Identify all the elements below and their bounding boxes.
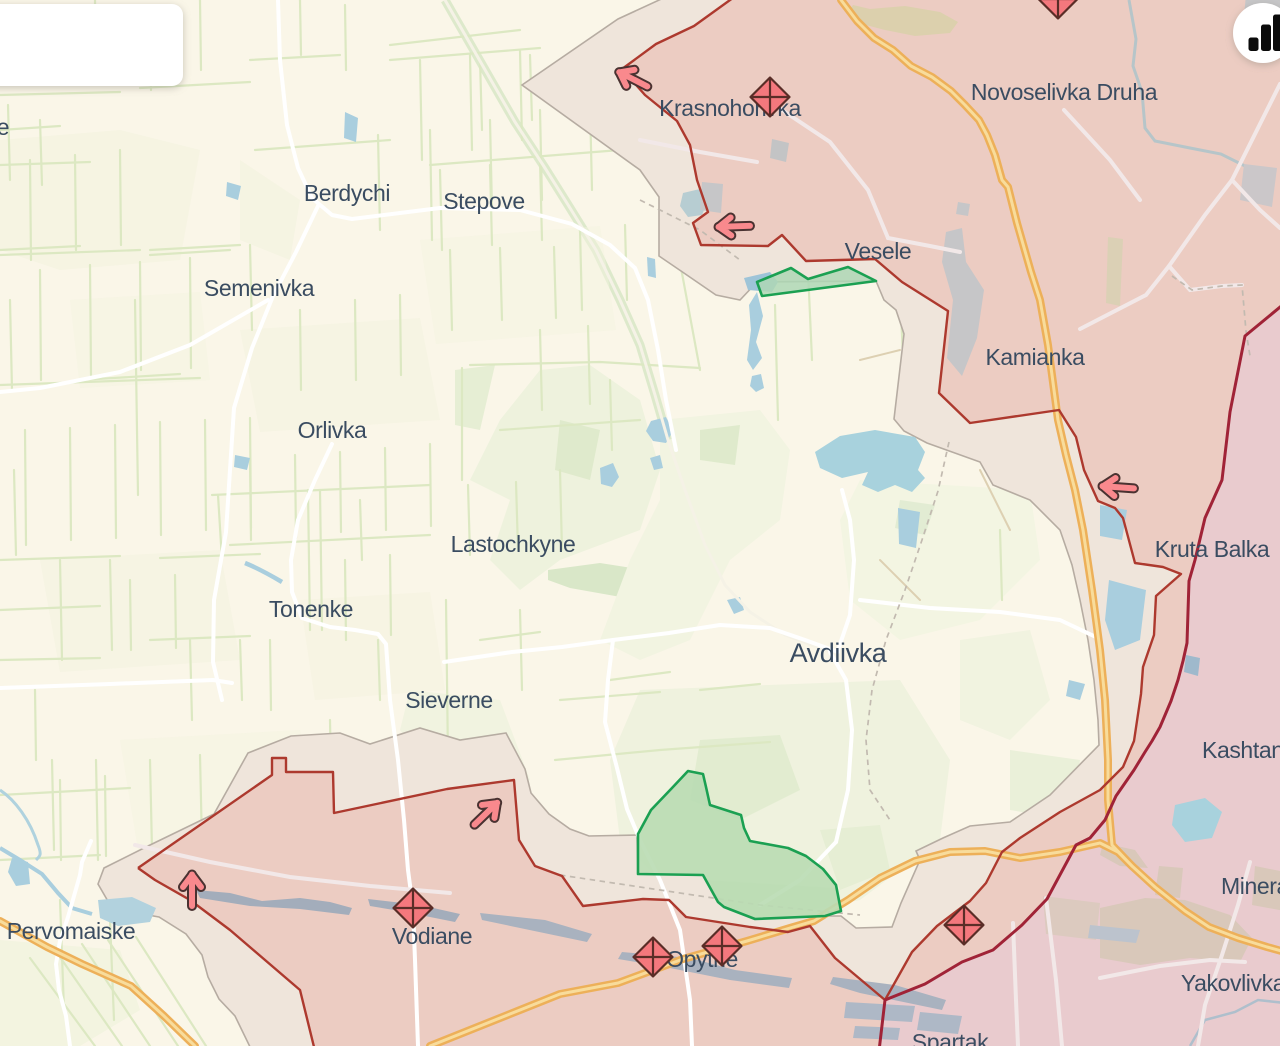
svg-text:Orlivka: Orlivka (298, 417, 367, 443)
svg-text:Tonenke: Tonenke (269, 596, 353, 622)
svg-text:Kamianka: Kamianka (985, 344, 1085, 370)
svg-text:Sieverne: Sieverne (405, 687, 493, 713)
svg-text:e: e (0, 114, 9, 140)
svg-text:Semenivka: Semenivka (204, 275, 315, 301)
svg-text:Lastochkyne: Lastochkyne (451, 531, 576, 557)
svg-text:Berdychi: Berdychi (304, 180, 390, 206)
svg-text:Vodiane: Vodiane (392, 923, 472, 949)
svg-text:Kashtanove: Kashtanove (1202, 737, 1280, 763)
svg-text:Avdiivka: Avdiivka (790, 638, 888, 668)
svg-text:Stepove: Stepove (443, 188, 525, 214)
svg-text:Pervomaiske: Pervomaiske (7, 918, 136, 944)
svg-text:Novoselivka Druha: Novoselivka Druha (971, 79, 1158, 105)
svg-text:Kruta Balka: Kruta Balka (1155, 536, 1270, 562)
svg-text:Yakovlivka: Yakovlivka (1181, 970, 1280, 996)
svg-text:Mineralne: Mineralne (1221, 873, 1280, 899)
svg-text:Spartak: Spartak (912, 1029, 989, 1046)
svg-text:Vesele: Vesele (845, 238, 912, 264)
